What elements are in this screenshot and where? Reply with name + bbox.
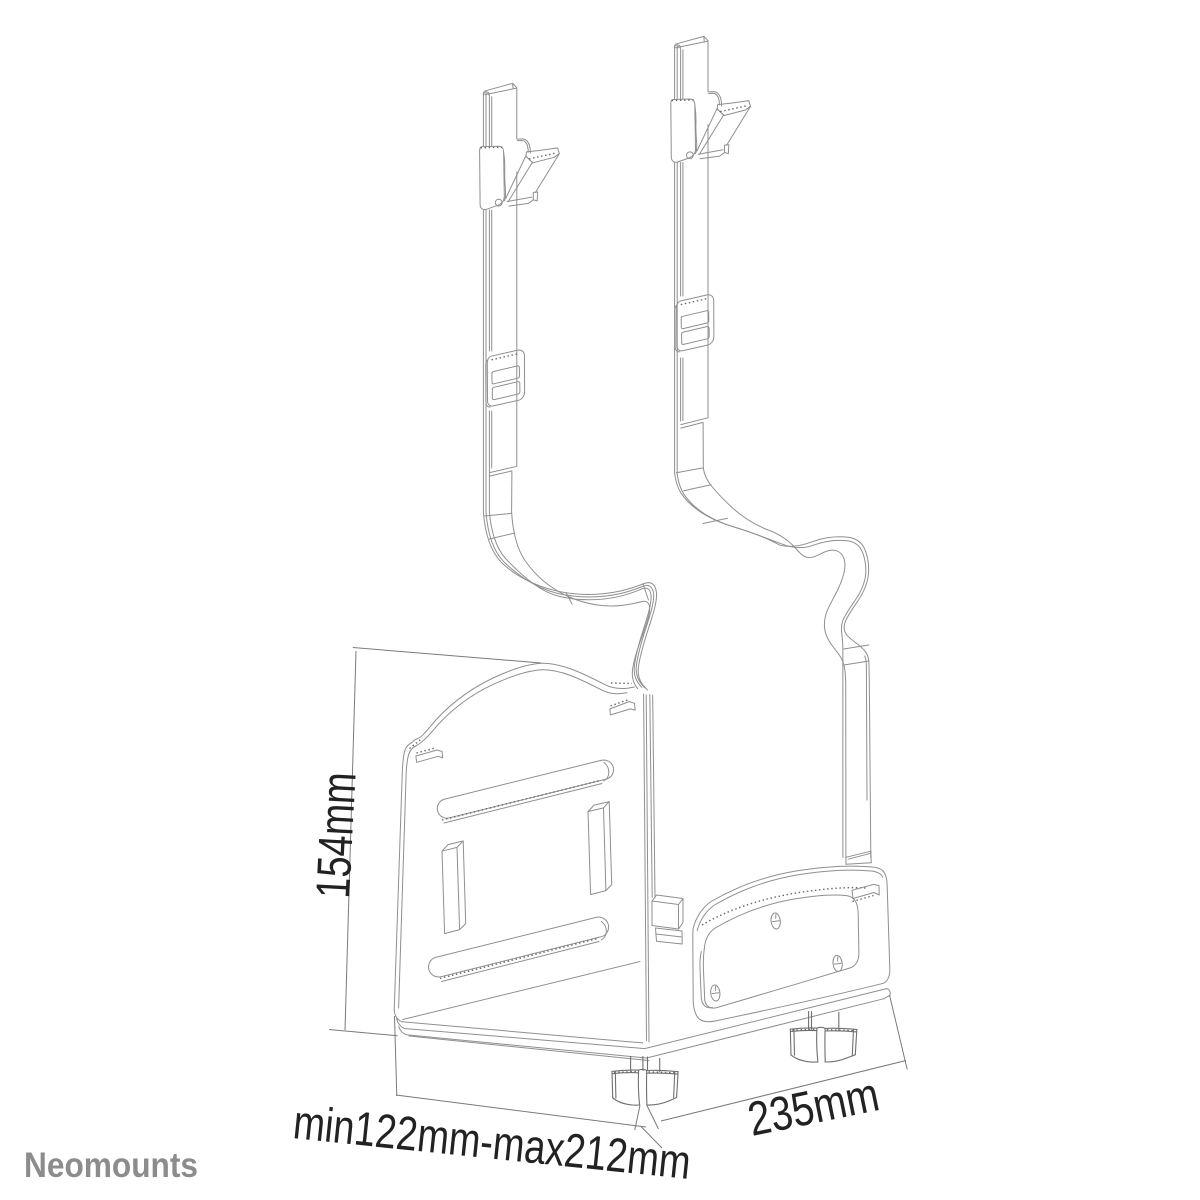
svg-text:154mm: 154mm [307,771,367,900]
svg-text:Neomounts: Neomounts [24,1146,198,1185]
